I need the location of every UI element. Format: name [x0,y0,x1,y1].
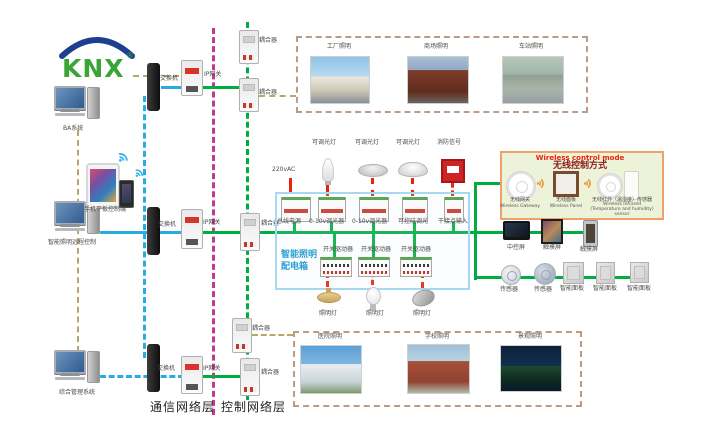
wireless-panel-label-en: Wireless Panel [542,204,590,209]
comm-layer-label: 通信网络层 [150,401,215,415]
coupler-icon [239,78,259,112]
spot-lamp-icon [410,287,437,309]
lamp1-label: 照明灯 [319,311,337,318]
coupler-icon [232,318,252,353]
monitor-icon [54,86,86,110]
green-right-trunk-line [474,182,477,280]
ip-gateway-icon [181,60,203,96]
mobile-label: 手机平板控制端 [84,207,126,214]
gateway3-label: IP网关 [203,366,220,373]
coupler-icon [240,358,260,396]
sensor1-label: 传感器 [500,287,518,294]
station-lighting-photo [502,56,564,104]
dimmable-candle-lamp-icon [322,158,334,182]
dimmable-ceiling-lamp-icon [398,162,428,177]
power-in-label: 220vAC [272,167,295,174]
wifi-icon [131,163,149,181]
pc-ba-system [54,86,102,126]
gateway2-label: IP网关 [203,220,220,227]
wireless-gateway-icon [507,172,535,200]
central-screen-label: 中控屏 [507,245,525,252]
pc-management-label: 综合管理系统 [59,390,95,397]
actuator3-label: 开关驱动器 [401,247,431,254]
gateway1-label: IP网关 [204,72,221,79]
switch1-label: 交换机 [160,76,178,83]
wireless-gateway-label-en: Wireless Gateway [496,204,544,209]
actuator1-label: 开关驱动器 [323,247,353,254]
knx-logo: KNX ® [54,32,140,82]
scene-hospital-label: 医院照明 [318,334,342,341]
smart-panel-icon [630,262,649,283]
wifi-icon [537,177,548,190]
scene-school-label: 学校照明 [425,334,449,341]
ip-gateway-icon [181,356,203,394]
scene-landscape-label: 景观照明 [518,334,542,341]
scene-station-label: 车站照明 [519,44,543,51]
bulb-lamp-icon [366,287,381,305]
sensor-icon [501,265,521,285]
mall-lighting-photo [407,56,469,104]
pc-ba-label: BA系统 [63,126,83,133]
switch2-label: 交换机 [158,222,176,229]
wireless-title-cn: 无线控制方式 [500,161,660,171]
khaki-link-coupler-bottombox [252,334,293,336]
green-sensor-row-line [474,276,648,279]
coupler1-label: 耦合器 [259,38,277,45]
smartphone-icon [119,180,134,208]
switch3-label: 交换机 [157,366,175,373]
wireless-gateway-label-cn: 无线网关 [499,198,541,204]
smart-panel2-label: 智能面板 [593,286,617,293]
module2-label: 0-10v调光器 [309,219,344,226]
wireless-panel-label-cn: 无线面板 [545,198,587,204]
blue-link-pc2-switch2 [100,231,184,234]
knx-logo-text: KNX [62,54,125,82]
wireless-ir-sensor-round-icon [598,174,622,198]
touch-screen-icon [541,219,563,244]
landscape-lighting-photo [500,345,562,392]
monitor-stand [60,109,80,112]
touch-screen2-label: 触摸屏 [580,247,598,254]
dim-lamp1-label: 可调光灯 [312,140,336,147]
monitor-icon [54,201,86,225]
monitor-foot [55,377,85,380]
touch-screen1-label: 触摸屏 [543,245,561,252]
pc-remote-label: 智能照明远程控制 [48,240,96,247]
ceiling-lamp-icon [317,292,341,303]
dim-lamp3-label: 可调光灯 [396,140,420,147]
touch-screen-phone-icon [583,220,598,247]
switch-actuator-icon [320,257,352,277]
fire-signal-label: 消防信号 [437,140,461,147]
blue-vertical-trunk-line [143,96,146,358]
lamp2-label: 照明灯 [366,311,384,318]
module1-label: 总线电源 [277,219,301,226]
wireless-panel-icon [553,171,579,197]
lamp3-label: 照明灯 [413,311,431,318]
wifi-icon [584,177,595,190]
smart-panel-icon [596,262,615,284]
dimmable-downlight-icon [358,164,388,177]
distbox-name-line2: 配电箱 [281,262,308,272]
module5-label: 干接点输入 [438,219,468,226]
sensor-icon [534,263,556,285]
monitor-icon [54,350,86,374]
switch-actuator-icon [400,257,432,277]
module4-label: 可控硅调光 [398,219,428,226]
green-link-wireless-box [474,182,502,185]
central-control-screen-icon [503,221,530,240]
monitor-stand [60,224,80,227]
coupler-icon [239,30,259,64]
smart-panel1-label: 智能面板 [560,286,584,293]
coupler4-label: 耦合器 [252,326,270,333]
module3-label: 0-10v调光器 [352,219,387,226]
ethernet-switch-icon [147,207,160,255]
knx-lighting-topology-diagram: KNX ® BA系统 智能照明远程控制 [0,0,715,443]
blue-link-pc3-switch3 [100,375,184,378]
coupler2-label: 耦合器 [259,90,277,97]
scene-factory-label: 工厂照明 [327,44,351,51]
smart-panel3-label: 智能面板 [627,286,651,293]
monitor-foot [55,228,85,231]
coupler-icon [240,213,260,251]
wireless-ir-sensor-rect-icon [624,171,639,200]
monitor-foot [55,113,85,116]
pc-tower-icon [87,87,100,119]
sensor2-label: 传感器 [534,287,552,294]
scene-mall-label: 商场照明 [424,44,448,51]
ethernet-switch-icon [147,63,160,111]
ip-gateway-icon [181,209,203,249]
knx-logo-registered: ® [126,51,134,60]
school-lighting-photo [407,344,470,394]
tablet-icon [86,163,120,209]
pc-tower-icon [87,351,100,383]
ctrl-layer-label: 控制网络层 [221,401,286,415]
smart-panel-icon [563,262,584,284]
pc-management-system [54,350,102,390]
fire-alarm-icon [441,159,465,183]
wireless-ir-label-en: Wireless Infrared (Temperature and humid… [590,203,654,218]
actuator2-label: 开关驱动器 [361,247,391,254]
factory-lighting-photo [310,56,370,104]
distbox-name-line1: 智能照明 [281,250,317,260]
coupler5-label: 耦合器 [261,370,279,377]
monitor-stand [60,373,80,376]
dim-lamp2-label: 可调光灯 [355,140,379,147]
switch-actuator-icon [358,257,390,277]
hospital-lighting-photo [300,345,362,394]
